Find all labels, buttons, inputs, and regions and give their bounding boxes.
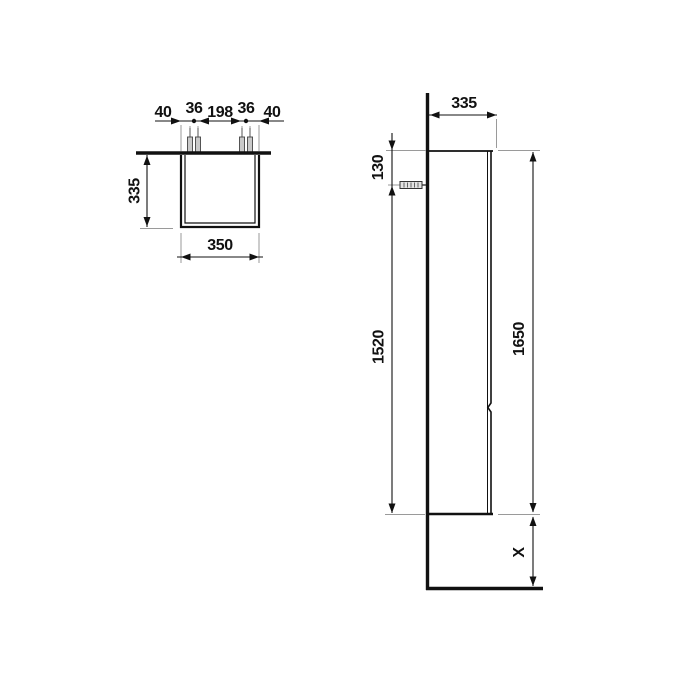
dim-label-pin-span: 198 — [207, 104, 233, 121]
arrow-down-icon — [144, 217, 151, 227]
arrow-down-icon — [530, 577, 537, 587]
arrow-up-icon — [530, 152, 537, 162]
dim-label-pin-gap-right: 36 — [238, 100, 255, 117]
arrow-right-icon — [487, 112, 497, 119]
screw-icon — [388, 182, 426, 189]
cabinet-outline-plan — [181, 155, 259, 227]
technical-drawing-canvas: 40 36 198 36 40 335 — [0, 0, 700, 700]
mounting-pin-icon — [240, 128, 245, 152]
mounting-pin-icon — [188, 128, 193, 152]
arrow-up-icon — [389, 186, 396, 196]
mounting-pin-icon — [248, 128, 253, 152]
arrow-right-icon — [171, 118, 181, 125]
door-front-line-with-handle-notch — [488, 151, 491, 513]
arrow-left-icon — [181, 254, 191, 261]
arrow-down-icon — [389, 141, 396, 151]
arrow-down-icon — [389, 504, 396, 514]
dim-label-top-to-fixing: 130 — [370, 154, 387, 180]
mounting-pin-icon — [196, 128, 201, 152]
dim-label-plan-depth: 335 — [127, 178, 144, 204]
dimension-dot — [244, 119, 248, 123]
arrow-up-icon — [144, 156, 151, 166]
dim-label-right-offset: 40 — [264, 104, 281, 121]
arrow-up-icon — [530, 517, 537, 527]
dim-label-left-offset: 40 — [155, 104, 172, 121]
dim-label-side-depth: 335 — [451, 95, 477, 112]
dim-label-total-height: 1650 — [511, 322, 528, 356]
arrow-left-icon — [430, 112, 440, 119]
dim-label-pin-gap-left: 36 — [186, 100, 203, 117]
arrow-right-icon — [250, 254, 260, 261]
top-view: 40 36 198 36 40 335 — [127, 100, 285, 263]
dim-label-floor-clearance: X — [511, 547, 528, 558]
arrow-down-icon — [530, 503, 537, 513]
dimension-dot — [192, 119, 196, 123]
dim-label-fixing-to-bottom: 1520 — [371, 330, 388, 364]
dimension-drawing: 40 36 198 36 40 335 — [0, 0, 700, 700]
dim-label-plan-width: 350 — [207, 237, 233, 254]
side-view: 335 130 1520 1650 X — [370, 93, 543, 590]
cabinet-inner-plan — [185, 155, 255, 223]
